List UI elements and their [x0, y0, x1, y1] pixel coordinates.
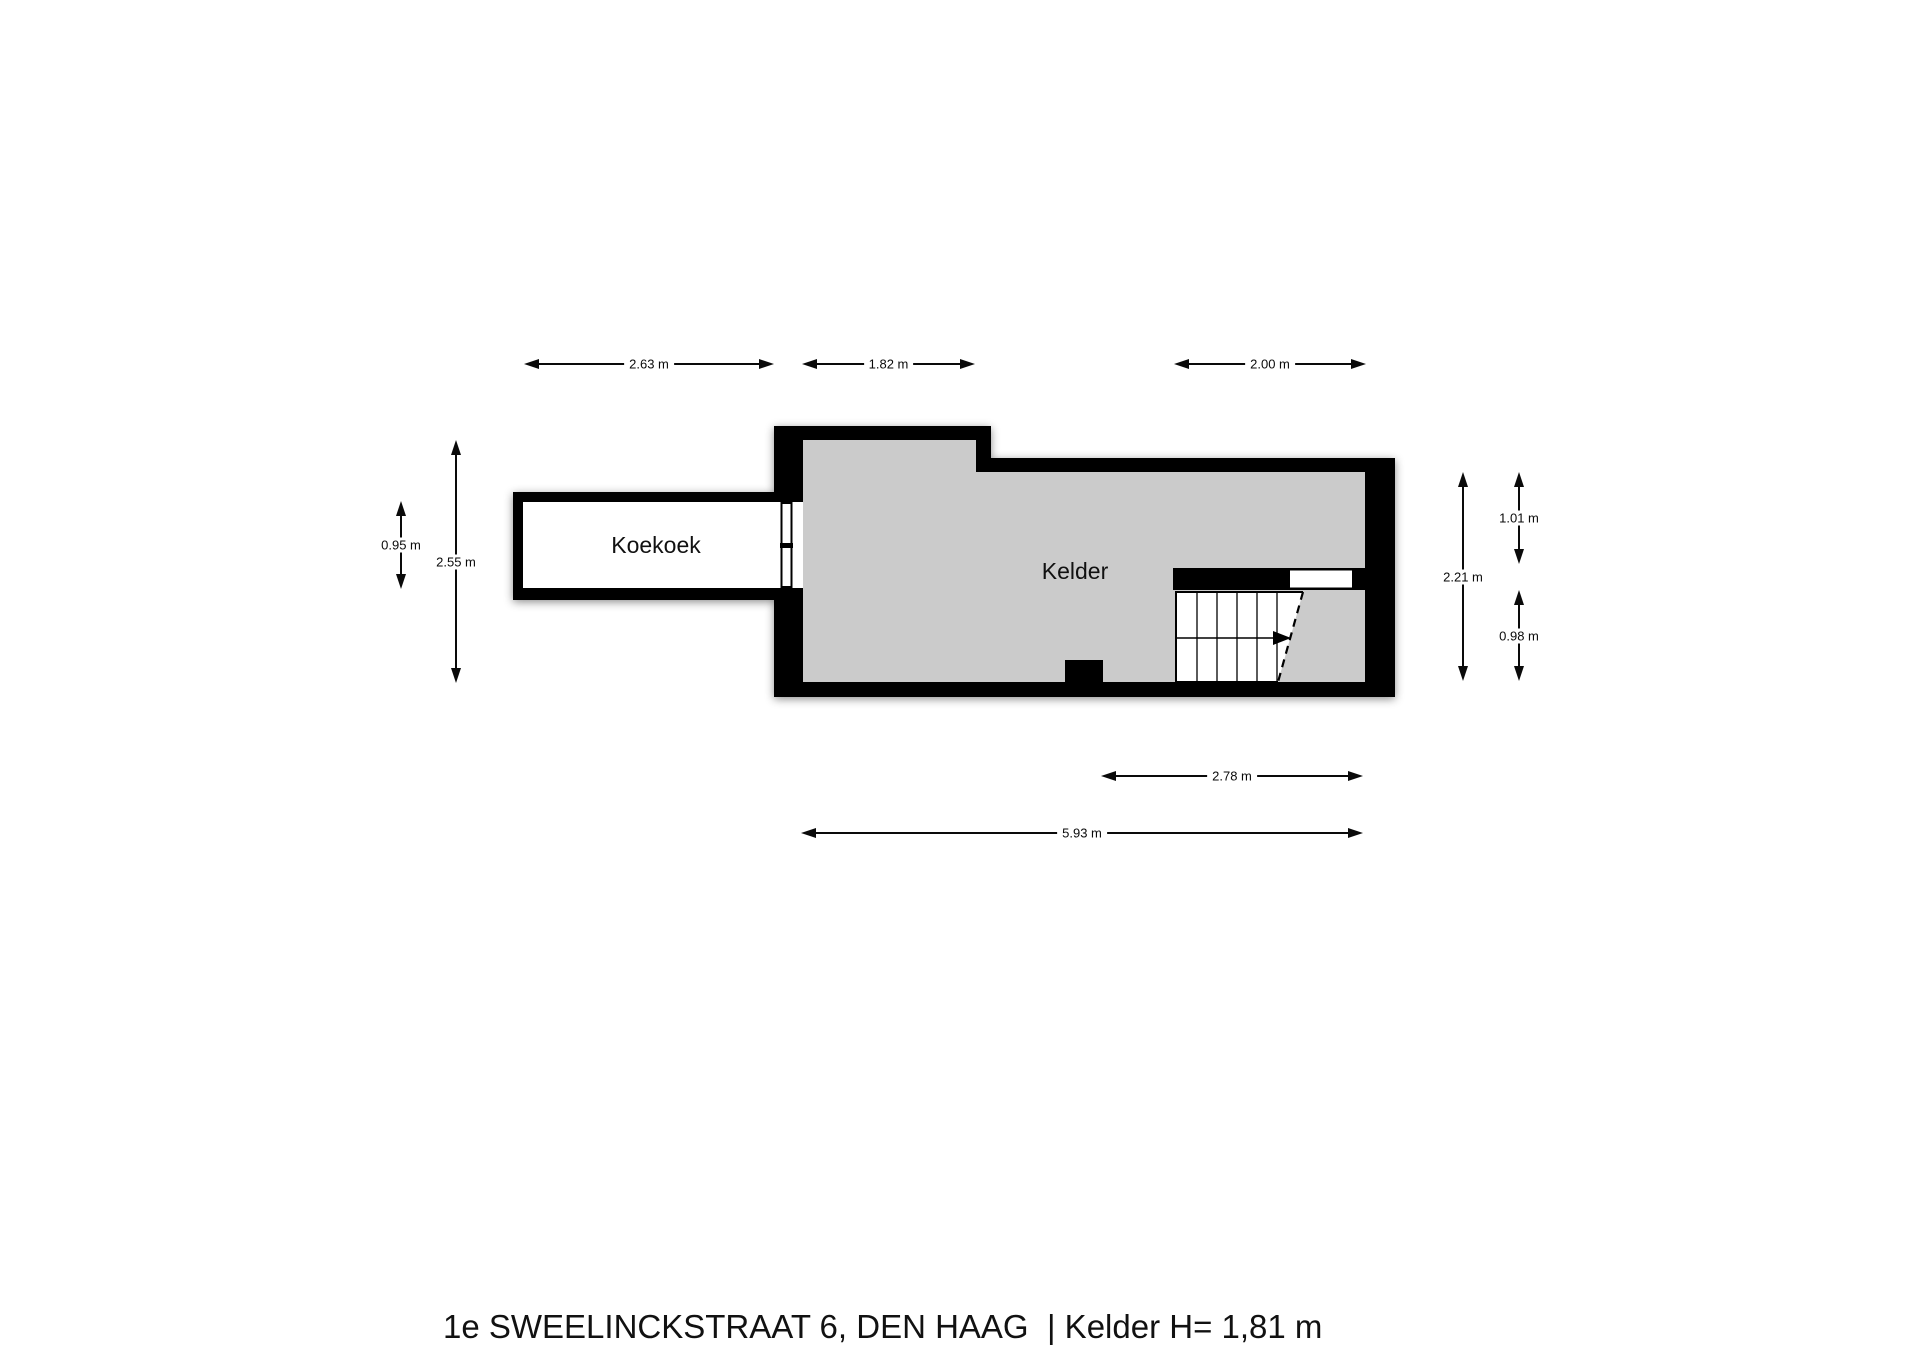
wall-left-upper — [774, 426, 803, 502]
dimension-label: 2.55 m — [431, 554, 481, 569]
wall-top-left-segment — [774, 426, 991, 440]
page-title: 1e SWEELINCKSTRAAT 6, DEN HAAG | Kelder … — [443, 1309, 1322, 1345]
wall-right — [1365, 458, 1395, 697]
dimension-label: 2.78 m — [1207, 769, 1257, 784]
floorplan-drawing — [0, 0, 1920, 1358]
arrowhead-left-icon — [1174, 359, 1189, 369]
room-label-koekoek: Koekoek — [556, 532, 756, 558]
arrowhead-up-icon — [1514, 472, 1524, 487]
arrowhead-up-icon — [451, 440, 461, 455]
dimension-label: 2.00 m — [1245, 357, 1295, 372]
wall-stair-header — [1173, 568, 1290, 590]
arrowhead-right-icon — [1348, 771, 1363, 781]
dimension-label: 2.21 m — [1438, 569, 1488, 584]
arrowhead-down-icon — [451, 668, 461, 683]
wall-left-lower — [774, 588, 803, 697]
dimension-label: 2.63 m — [624, 357, 674, 372]
koekoek-wall-bottom — [513, 588, 774, 600]
koekoek-wall-top — [513, 492, 774, 502]
arrowhead-left-icon — [524, 359, 539, 369]
arrowhead-right-icon — [960, 359, 975, 369]
arrowhead-right-icon — [1351, 359, 1366, 369]
dimension-label: 5.93 m — [1057, 826, 1107, 841]
door-edge-bottom — [1290, 588, 1352, 591]
dimension-label: 0.95 m — [376, 538, 426, 553]
arrowhead-down-icon — [1514, 666, 1524, 681]
floorplan-canvas: 2.63 m 1.82 m 2.00 m 0.95 m 2.55 m 2.21 … — [0, 0, 1920, 1358]
koekoek-wall-left — [513, 492, 523, 600]
arrowhead-down-icon — [1458, 666, 1468, 681]
arrowhead-left-icon — [802, 359, 817, 369]
wall-stair-header-right — [1352, 568, 1365, 590]
arrowhead-up-icon — [396, 501, 406, 516]
arrowhead-up-icon — [1514, 590, 1524, 605]
door-opening — [1290, 568, 1352, 590]
dimension-label: 1.01 m — [1494, 511, 1544, 526]
dimension-label: 1.82 m — [864, 357, 914, 372]
arrowhead-down-icon — [1514, 549, 1524, 564]
arrowhead-right-icon — [759, 359, 774, 369]
wall-top-right-segment — [976, 458, 1395, 472]
arrowhead-up-icon — [1458, 472, 1468, 487]
door-edge-top — [1290, 568, 1352, 571]
dimension-label: 0.98 m — [1494, 628, 1544, 643]
arrowhead-down-icon — [396, 574, 406, 589]
wall-bottom-pier — [1065, 660, 1103, 682]
wall-bottom — [774, 682, 1395, 697]
room-label-kelder: Kelder — [975, 558, 1175, 584]
arrowhead-right-icon — [1348, 828, 1363, 838]
arrowhead-left-icon — [1101, 771, 1116, 781]
arrowhead-left-icon — [801, 828, 816, 838]
